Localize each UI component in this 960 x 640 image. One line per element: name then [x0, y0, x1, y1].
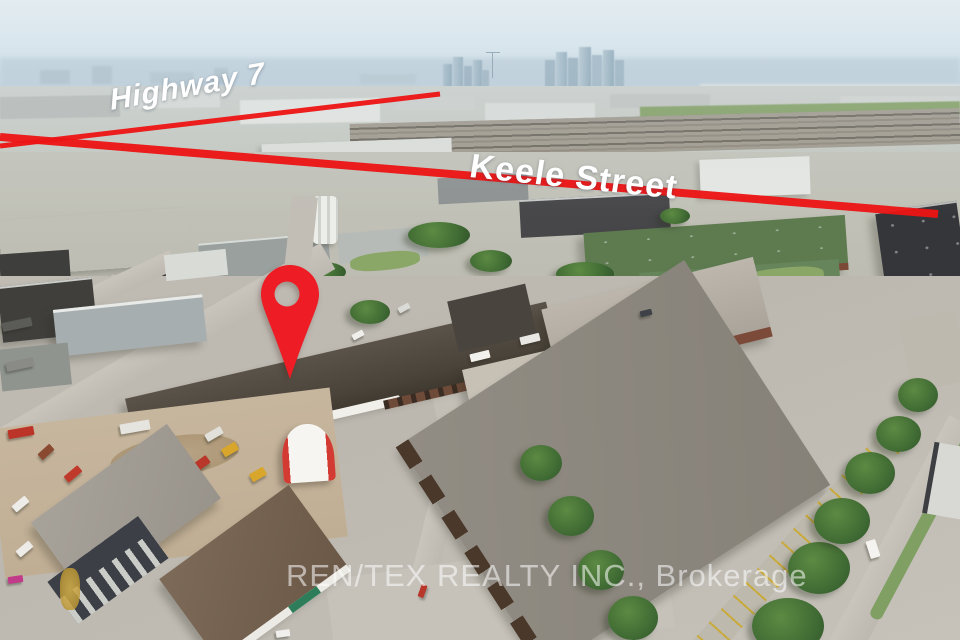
- highway7-line: [0, 94, 440, 146]
- location-pin-icon: [256, 262, 324, 382]
- aerial-photo: Highway 7 Keele Street REN/TEX REALTY IN…: [0, 0, 960, 640]
- brokerage-watermark: REN/TEX REALTY INC., Brokerage: [286, 558, 808, 594]
